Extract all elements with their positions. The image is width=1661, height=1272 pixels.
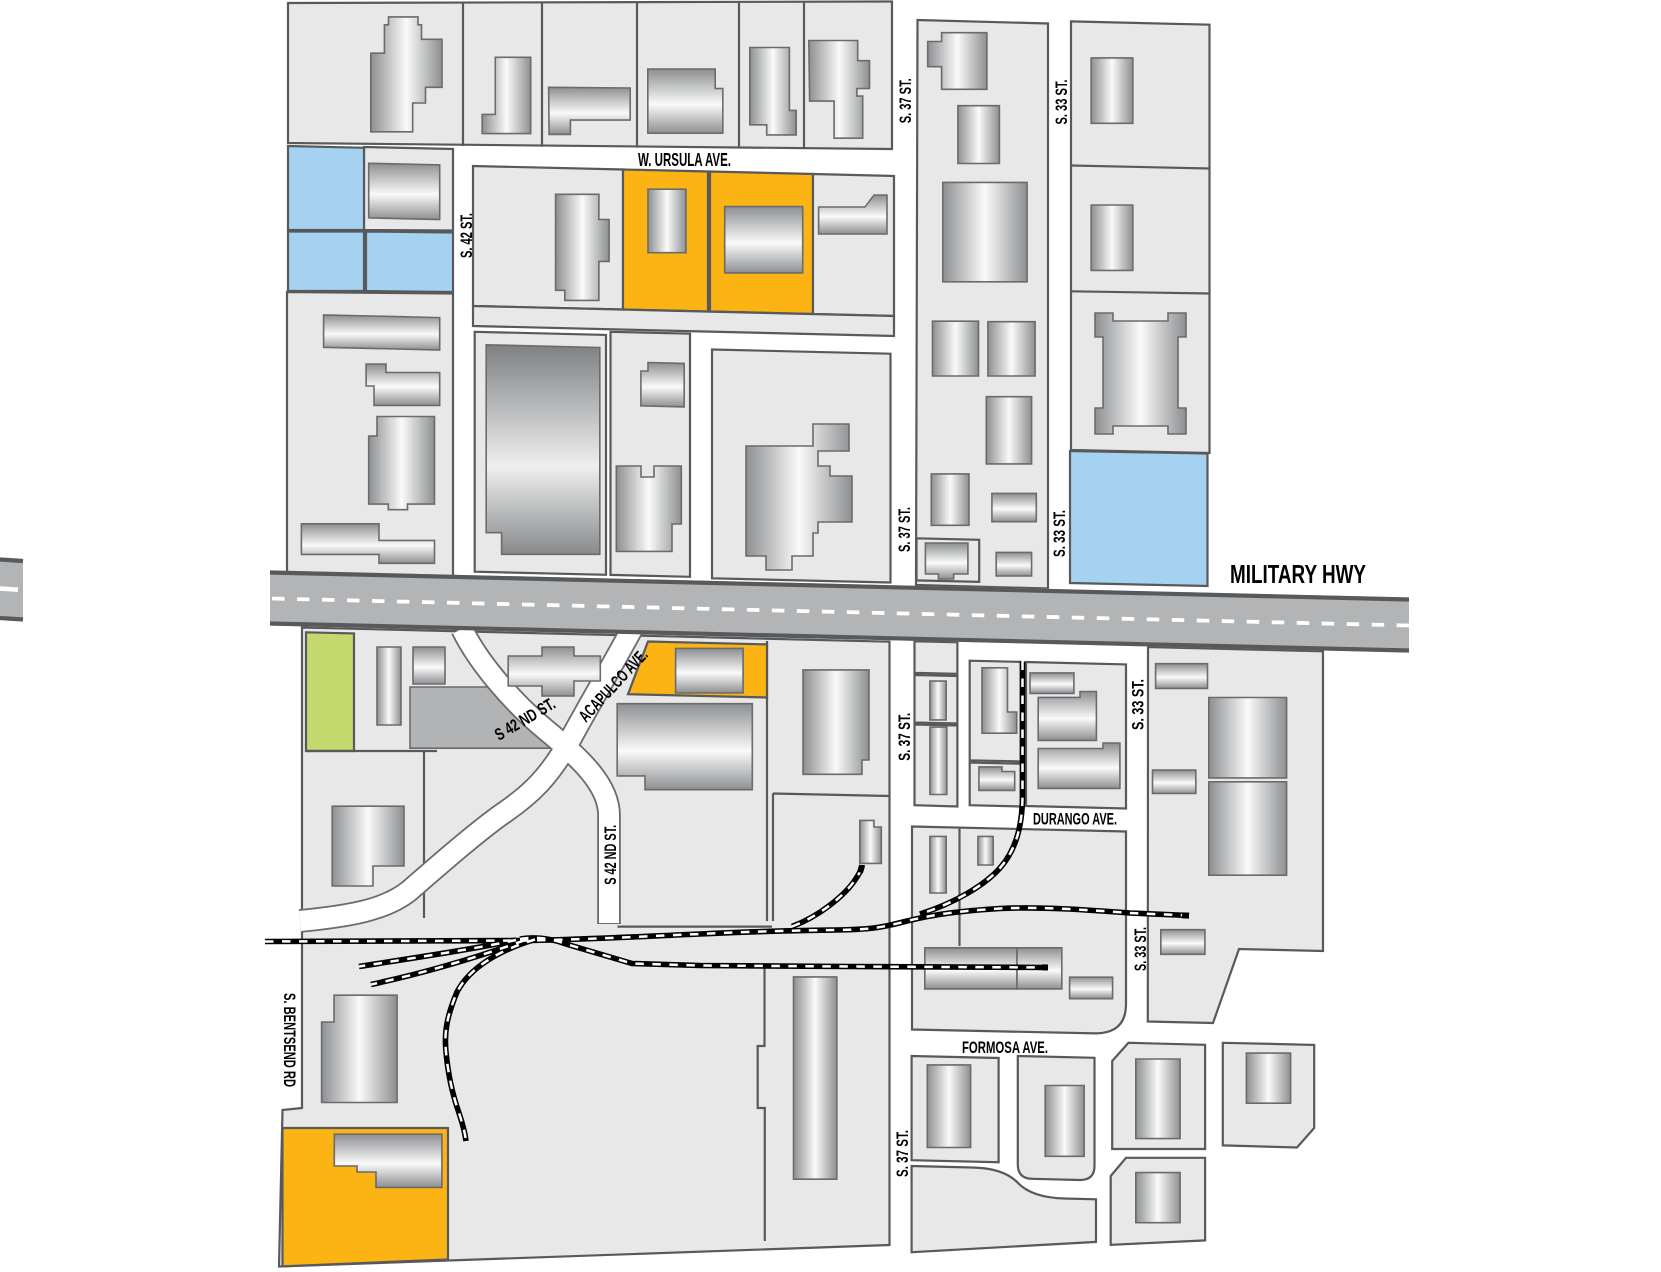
svg-text:MILITARY HWY: MILITARY HWY: [1230, 559, 1366, 589]
svg-text:S. 42 ST.: S. 42 ST.: [457, 213, 476, 258]
svg-text:S. 33 ST.: S. 33 ST.: [1131, 927, 1150, 971]
svg-text:S. BENTSEND RD: S. BENTSEND RD: [280, 993, 299, 1087]
svg-text:W. URSULA AVE.: W. URSULA AVE.: [638, 150, 731, 170]
svg-text:S. 37 ST.: S. 37 ST.: [895, 507, 914, 552]
svg-text:S. 33 ST.: S. 33 ST.: [1050, 510, 1069, 557]
svg-text:S. 37 ST.: S. 37 ST.: [893, 1130, 912, 1177]
svg-text:S. 37 ST.: S. 37 ST.: [896, 78, 915, 123]
svg-text:FORMOSA AVE.: FORMOSA AVE.: [962, 1038, 1048, 1057]
svg-text:S. 33 ST.: S. 33 ST.: [1052, 80, 1071, 125]
svg-text:S. 37 ST.: S. 37 ST.: [895, 713, 914, 761]
svg-text:S. 33 ST.: S. 33 ST.: [1129, 679, 1148, 730]
svg-text:S 42 ND ST.: S 42 ND ST.: [601, 825, 620, 885]
svg-text:DURANGO AVE.: DURANGO AVE.: [1033, 810, 1117, 829]
